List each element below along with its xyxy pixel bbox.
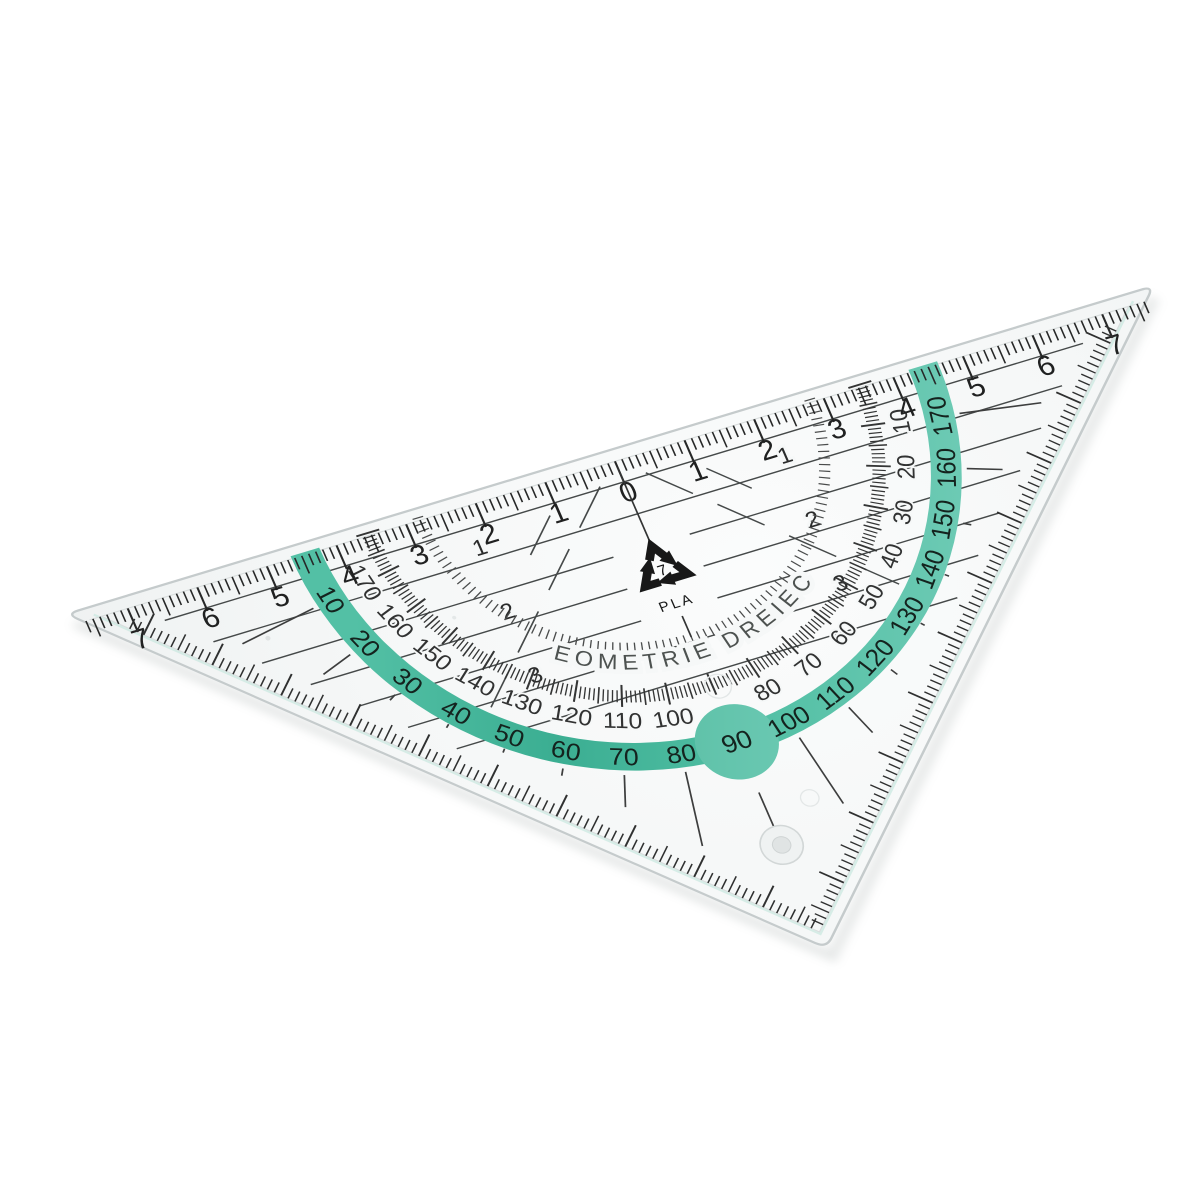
product-photo: 1 1 2 2 3 3 <box>0 0 1200 1200</box>
svg-text:70: 70 <box>609 744 640 771</box>
svg-text:20: 20 <box>892 454 920 479</box>
svg-text:110: 110 <box>603 708 643 734</box>
svg-text:150: 150 <box>926 497 962 541</box>
svg-text:80: 80 <box>664 739 699 769</box>
svg-text:30: 30 <box>888 498 919 527</box>
svg-text:60: 60 <box>549 736 583 767</box>
geodreieck-photo: 1 1 2 2 3 3 <box>0 0 1200 1200</box>
svg-text:100: 100 <box>650 703 696 733</box>
svg-text:160: 160 <box>932 448 963 489</box>
